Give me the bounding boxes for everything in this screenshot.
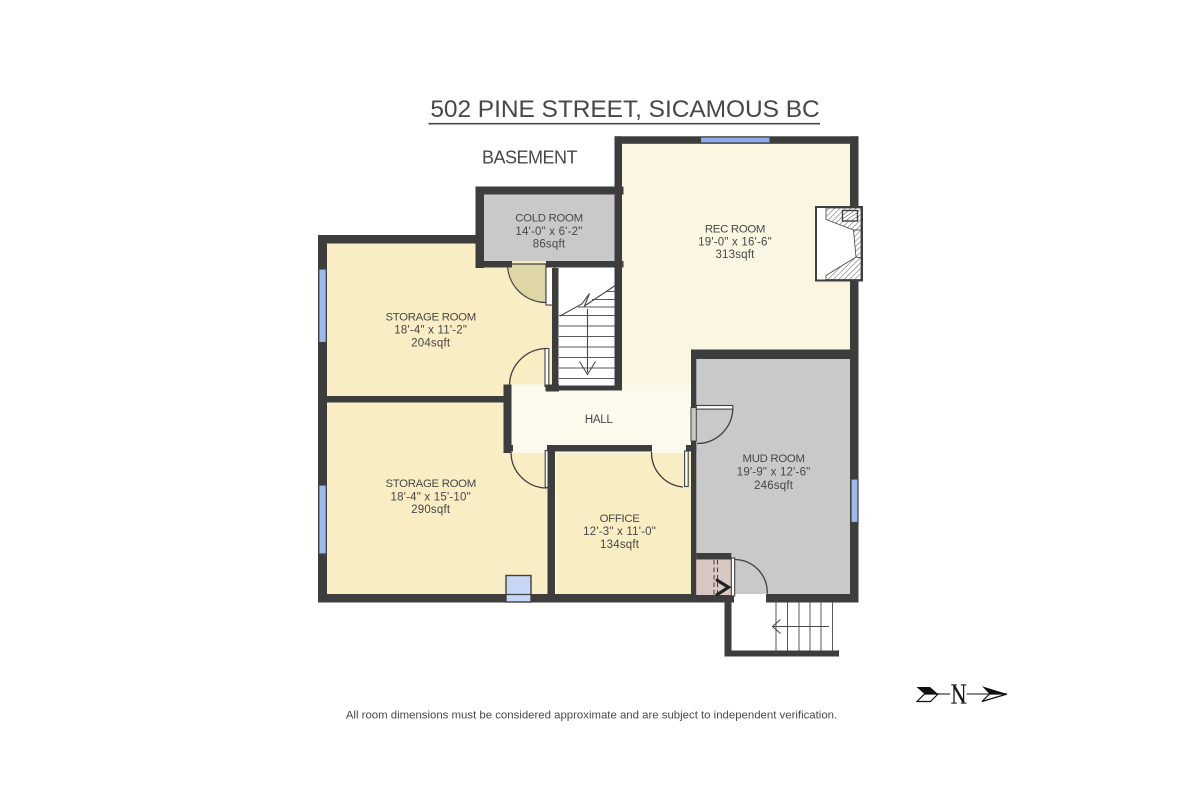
- svg-text:OFFICE: OFFICE: [600, 513, 641, 525]
- svg-text:MUD ROOM: MUD ROOM: [743, 453, 805, 465]
- svg-text:STORAGE ROOM: STORAGE ROOM: [385, 478, 476, 490]
- svg-text:12'-3" x 11'-0": 12'-3" x 11'-0": [583, 526, 656, 538]
- svg-text:14'-0" x 6'-2": 14'-0" x 6'-2": [515, 226, 582, 238]
- svg-text:19'-9" x 12'-6": 19'-9" x 12'-6": [737, 466, 811, 478]
- svg-text:BASEMENT: BASEMENT: [482, 148, 578, 168]
- svg-text:COLD ROOM: COLD ROOM: [515, 213, 583, 225]
- svg-text:All room dimensions must be co: All room dimensions must be considered a…: [346, 709, 837, 721]
- svg-text:19'-0" x 16'-6": 19'-0" x 16'-6": [698, 236, 772, 248]
- svg-text:246sqft: 246sqft: [754, 480, 794, 492]
- svg-text:502 PINE STREET, SICAMOUS BC: 502 PINE STREET, SICAMOUS BC: [430, 96, 819, 123]
- svg-text:86sqft: 86sqft: [533, 238, 566, 250]
- svg-text:HALL: HALL: [585, 414, 613, 426]
- svg-text:REC ROOM: REC ROOM: [705, 224, 765, 236]
- svg-text:STORAGE ROOM: STORAGE ROOM: [385, 312, 476, 324]
- svg-text:313sqft: 313sqft: [715, 249, 755, 261]
- svg-text:204sqft: 204sqft: [411, 337, 451, 349]
- svg-text:134sqft: 134sqft: [600, 539, 640, 551]
- svg-text:18'-4" x 11'-2": 18'-4" x 11'-2": [394, 324, 467, 336]
- svg-text:18'-4" x 15'-10": 18'-4" x 15'-10": [391, 492, 471, 504]
- svg-text:290sqft: 290sqft: [411, 504, 451, 516]
